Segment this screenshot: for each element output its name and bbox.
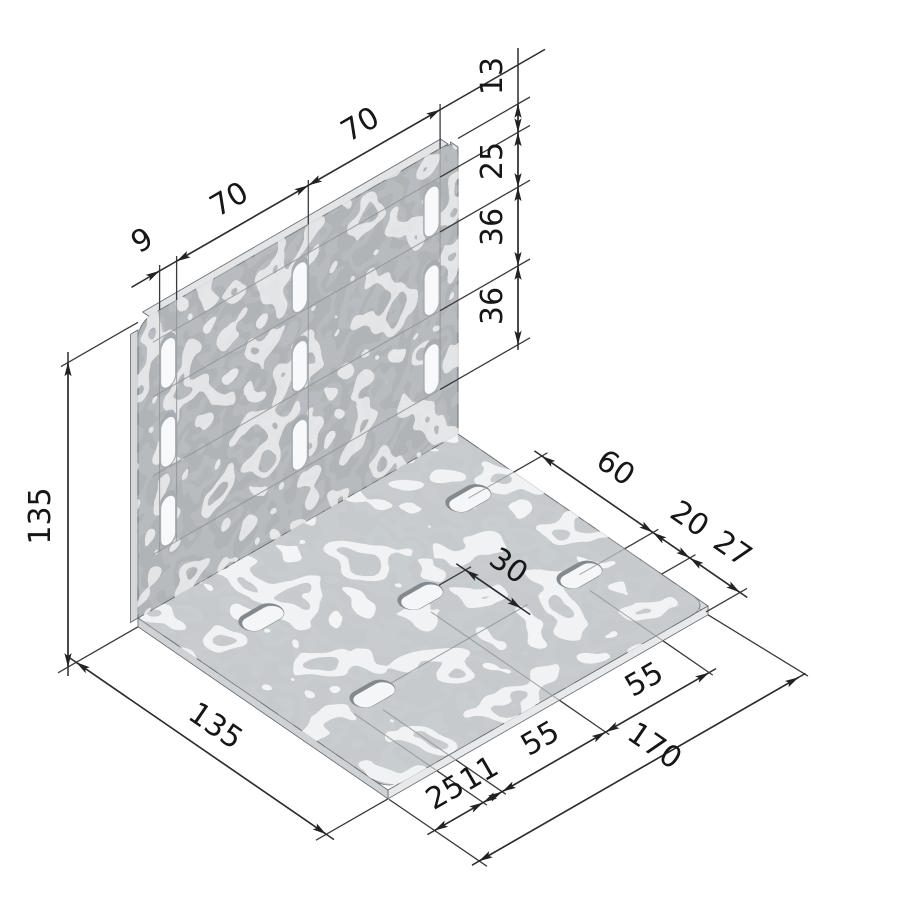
dim-label-base-col-spacing-2: 55 (619, 655, 670, 704)
dim-label-base-row-span: 60 (590, 443, 641, 493)
dim-label-col-spacing-2: 70 (335, 100, 386, 149)
dim-label-row-spacing-1: 36 (475, 208, 510, 246)
plate-left-edge (131, 330, 139, 623)
dim-label-col-spacing-1: 70 (204, 175, 255, 224)
dim-label-base-edge-margin: 27 (707, 524, 758, 574)
dim-label-slot-width: 9 (125, 221, 159, 261)
drawing-canvas: 9 70 70 13 25 36 36 135 135 60 20 27 30 … (0, 0, 908, 908)
dim-label-plate-height: 135 (23, 487, 58, 544)
dim-label-base-front-inset: 20 (664, 494, 715, 544)
dim-label-top-to-slot: 13 (475, 57, 510, 95)
dim-label-slot-length: 25 (475, 142, 510, 180)
dim-label-base-depth: 135 (182, 696, 249, 757)
dim-label-overall-length: 170 (621, 716, 688, 777)
technical-drawing: 9 70 70 13 25 36 36 135 135 60 20 27 30 … (0, 0, 908, 908)
dim-label-row-spacing-2: 36 (475, 287, 510, 325)
